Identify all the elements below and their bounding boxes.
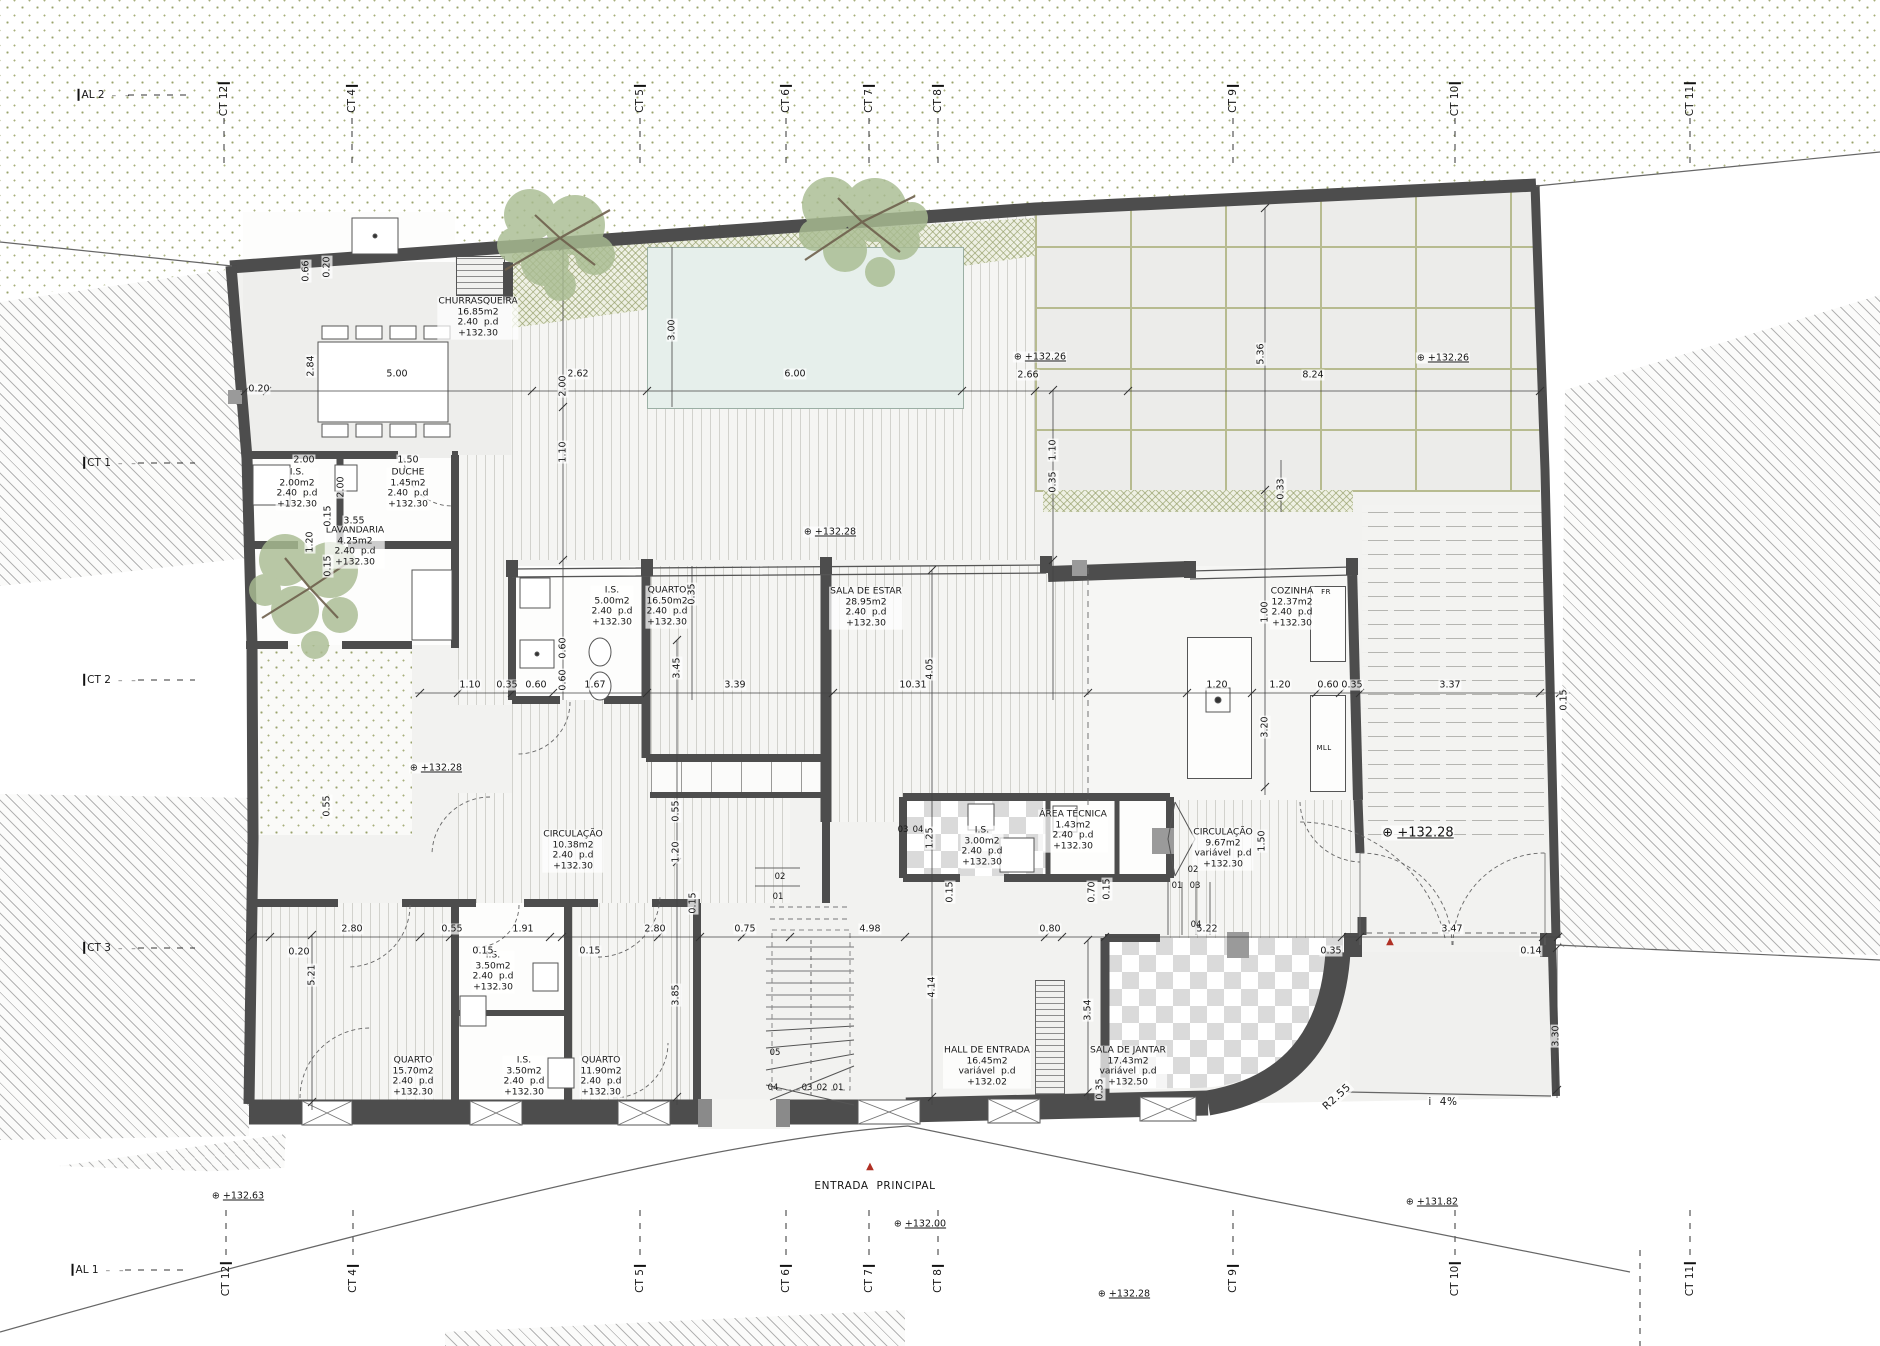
dimension-label: 0.15 <box>471 945 494 956</box>
dimension-label: 1.20 <box>670 840 681 863</box>
grid-marker-ct-10: CT 10 <box>1449 82 1461 118</box>
dimension-label: 0.60 <box>1316 679 1339 690</box>
level-marker: ⊕ +132.28 <box>803 526 857 537</box>
grid-marker-ct-4: CT 4 <box>347 1265 359 1295</box>
grid-marker-ct-2: CT 2 <box>83 674 141 686</box>
dimension-label: 2.00 <box>557 374 568 397</box>
dimension-label: 0.35 <box>1319 945 1342 956</box>
room-label: QUARTO 15.70m2 2.40 p.d +132.30 <box>391 1056 434 1099</box>
room-label: CIRCULAÇÃO 10.38m2 2.40 p.d +132.30 <box>542 830 603 873</box>
step-number: 03 <box>1189 882 1202 892</box>
room-label: SALA DE ESTAR 28.95m2 2.40 p.d +132.30 <box>829 587 903 630</box>
dimension-label: 5.36 <box>1255 342 1266 365</box>
grid-marker-ct-5: CT 5 <box>634 1265 646 1295</box>
dimension-label: 0.33 <box>1275 477 1286 500</box>
appliance-label: MLL <box>1315 744 1332 752</box>
room-label: CHURRASQUEIRA 16.85m2 2.40 p.d +132.30 <box>437 297 518 340</box>
grid-marker-ct-3: CT 3 <box>83 942 141 954</box>
dimension-label: 2.80 <box>340 923 363 934</box>
dimension-label: 4.98 <box>858 923 881 934</box>
grid-marker-ct-7: CT 7 <box>863 85 875 115</box>
dimension-label: 0.15 <box>578 945 601 956</box>
level-marker: ⊕ +132.00 <box>893 1218 947 1229</box>
level-marker: ⊕ +132.28 <box>1097 1288 1151 1299</box>
label-layer: AL 2CT 12CT 4CT 5CT 6CT 7CT 8CT 9CT 10CT… <box>0 0 1880 1346</box>
dimension-label: 3.45 <box>671 656 682 679</box>
dimension-label: 0.35 <box>686 582 697 605</box>
dimension-label: 2.00 <box>335 475 346 498</box>
dimension-label: 4.14 <box>926 975 937 998</box>
step-number: 02 <box>774 873 787 883</box>
dimension-label: 0.75 <box>733 923 756 934</box>
dimension-label: 2.84 <box>305 354 316 377</box>
dimension-label: 1.50 <box>1256 829 1267 852</box>
step-number: 01 <box>772 893 785 903</box>
level-marker: ⊕ +132.63 <box>211 1190 265 1201</box>
dimension-label: 3.85 <box>670 983 681 1006</box>
step-number: 03 <box>801 1084 814 1094</box>
dimension-label: 1.91 <box>511 923 534 934</box>
level-marker: ⊕ +132.28 <box>409 762 463 773</box>
floor-plan-drawing: AL 2CT 12CT 4CT 5CT 6CT 7CT 8CT 9CT 10CT… <box>0 0 1880 1346</box>
dimension-label: 0.35 <box>1094 1077 1105 1100</box>
room-label: COZINHA 12.37m2 2.40 p.d +132.30 <box>1270 587 1315 630</box>
dimension-label: 1.20 <box>1268 679 1291 690</box>
dimension-label: 0.55 <box>670 799 681 822</box>
dimension-label: 2.66 <box>1016 369 1039 380</box>
dimension-label: 5.00 <box>385 368 408 379</box>
room-label: I.S. 3.00m2 2.40 p.d +132.30 <box>961 826 1004 869</box>
dimension-label: 5.21 <box>306 963 317 986</box>
room-label: I.S. 3.50m2 2.40 p.d +132.30 <box>503 1056 546 1099</box>
dimension-label: 0.55 <box>321 794 332 817</box>
level-marker: ⊕ +132.26 <box>1416 352 1470 363</box>
dimension-label: 3.55 <box>342 515 365 526</box>
dimension-label: 0.15 <box>687 891 698 914</box>
dimension-label: 8.24 <box>1301 369 1324 380</box>
dimension-label: 0.20 <box>321 255 332 278</box>
dimension-label: 1.20 <box>304 530 315 553</box>
dimension-label: 6.00 <box>783 368 806 379</box>
room-label: I.S. 2.00m2 2.40 p.d +132.30 <box>276 468 319 511</box>
dimension-label: 3.54 <box>1082 998 1093 1021</box>
annotation: ENTRADA PRINCIPAL <box>813 1180 936 1192</box>
grid-marker-ct-11: CT 11 <box>1684 82 1696 118</box>
room-label: CIRCULAÇÃO 9.67m2 variável p.d +132.30 <box>1192 828 1253 871</box>
dimension-label: 0.35 <box>495 679 518 690</box>
step-number: 02 <box>1187 866 1200 876</box>
dimension-label: 10.31 <box>898 679 927 690</box>
dimension-label: 1.25 <box>924 826 935 849</box>
dimension-label: 0.66 <box>300 259 311 282</box>
room-label: QUARTO 16.50m2 2.40 p.d +132.30 <box>645 586 688 629</box>
dimension-label: 3.00 <box>666 318 677 341</box>
grid-marker-ct-6: CT 6 <box>780 85 792 115</box>
room-label: DUCHE 1.45m2 2.40 p.d +132.30 <box>387 468 430 511</box>
room-label: I.S. 3.50m2 2.40 p.d +132.30 <box>472 951 515 994</box>
dimension-label: 2.80 <box>643 923 666 934</box>
grid-marker-ct-8: CT 8 <box>932 85 944 115</box>
dimension-label: 0.60 <box>524 679 547 690</box>
grid-marker-ct-10: CT 10 <box>1449 1262 1461 1298</box>
step-number: 01 <box>832 1084 845 1094</box>
step-number: 04 <box>767 1084 780 1094</box>
dimension-label: 1.10 <box>1047 438 1058 461</box>
step-number: 02 <box>816 1084 829 1094</box>
grid-marker-ct-11: CT 11 <box>1684 1262 1696 1298</box>
dimension-label: 0.20 <box>287 946 310 957</box>
dimension-label: 0.35 <box>1047 470 1058 493</box>
room-label: ÁREA TÉCNICA 1.43m2 2.40 p.d +132.30 <box>1038 810 1108 853</box>
dimension-label: 4.05 <box>924 657 935 680</box>
entry-triangle-marker: ▲ <box>865 1161 875 1173</box>
dimension-label: 0.80 <box>1038 923 1061 934</box>
dimension-label: 1.67 <box>583 679 606 690</box>
room-label: HALL DE ENTRADA 16.45m2 variável p.d +13… <box>943 1046 1031 1089</box>
entry-triangle-marker: ▲ <box>1385 936 1395 948</box>
step-number: 03 <box>897 826 910 836</box>
grid-marker-ct-7: CT 7 <box>863 1265 875 1295</box>
step-number: 04 <box>912 826 925 836</box>
dimension-label: 3.39 <box>723 679 746 690</box>
dimension-label: 3.37 <box>1438 679 1461 690</box>
dimension-label: 0.15 <box>1101 877 1112 900</box>
appliance-label: FR <box>1320 588 1332 596</box>
dimension-label: 3.20 <box>1259 715 1270 738</box>
grid-marker-ct-1: CT 1 <box>83 457 141 469</box>
annotation: i 4% <box>1427 1096 1458 1108</box>
grid-marker-ct-9: CT 9 <box>1227 1265 1239 1295</box>
room-label: I.S. 5.00m2 2.40 p.d +132.30 <box>591 586 634 629</box>
dimension-label: 0.60 <box>557 668 568 691</box>
dimension-label: 0.14 <box>1519 945 1542 956</box>
dimension-label: 1.10 <box>557 440 568 463</box>
room-label: LAVANDARIA 4.25m2 2.40 p.d +132.30 <box>325 526 385 569</box>
dimension-label: 0.70 <box>1086 880 1097 903</box>
grid-marker-ct-4: CT 4 <box>346 85 358 115</box>
grid-marker-al-1: AL 1 <box>72 1264 129 1276</box>
level-marker: ⊕ +131.82 <box>1405 1196 1459 1207</box>
dimension-label: 3.30 <box>1550 1024 1561 1047</box>
grid-marker-ct-8: CT 8 <box>932 1265 944 1295</box>
grid-marker-ct-12: CT 12 <box>218 82 230 118</box>
dimension-label: 1.10 <box>458 679 481 690</box>
step-number: 01 <box>1171 882 1184 892</box>
level-marker: ⊕ +132.26 <box>1013 351 1067 362</box>
dimension-label: 3.47 <box>1440 923 1463 934</box>
step-number: 04 <box>1190 921 1203 931</box>
dimension-label: 1.50 <box>396 454 419 465</box>
grid-marker-ct-9: CT 9 <box>1227 85 1239 115</box>
dimension-label: 0.15 <box>944 880 955 903</box>
dimension-label: 0.15 <box>1558 688 1569 711</box>
room-label: QUARTO 11.90m2 2.40 p.d +132.30 <box>579 1056 622 1099</box>
annotation: R2.55 <box>1320 1081 1355 1114</box>
grid-marker-ct-5: CT 5 <box>634 85 646 115</box>
grid-marker-ct-6: CT 6 <box>780 1265 792 1295</box>
dimension-label: 1.00 <box>1259 600 1270 623</box>
grid-marker-ct-12: CT 12 <box>220 1262 232 1298</box>
dimension-label: 0.60 <box>557 636 568 659</box>
dimension-label: 0.55 <box>440 923 463 934</box>
level-marker: ⊕ +132.28 <box>1381 825 1454 840</box>
dimension-label: 0.15 <box>322 504 333 527</box>
dimension-label: 0.15 <box>322 554 333 577</box>
step-number: 05 <box>769 1049 782 1059</box>
grid-marker-al-2: AL 2 <box>78 89 135 101</box>
dimension-label: 0.35 <box>1340 679 1363 690</box>
dimension-label: 2.00 <box>292 454 315 465</box>
dimension-label: 2.62 <box>566 368 589 379</box>
dimension-label: 1.20 <box>1205 679 1228 690</box>
dimension-label: 0.20 <box>247 383 270 394</box>
